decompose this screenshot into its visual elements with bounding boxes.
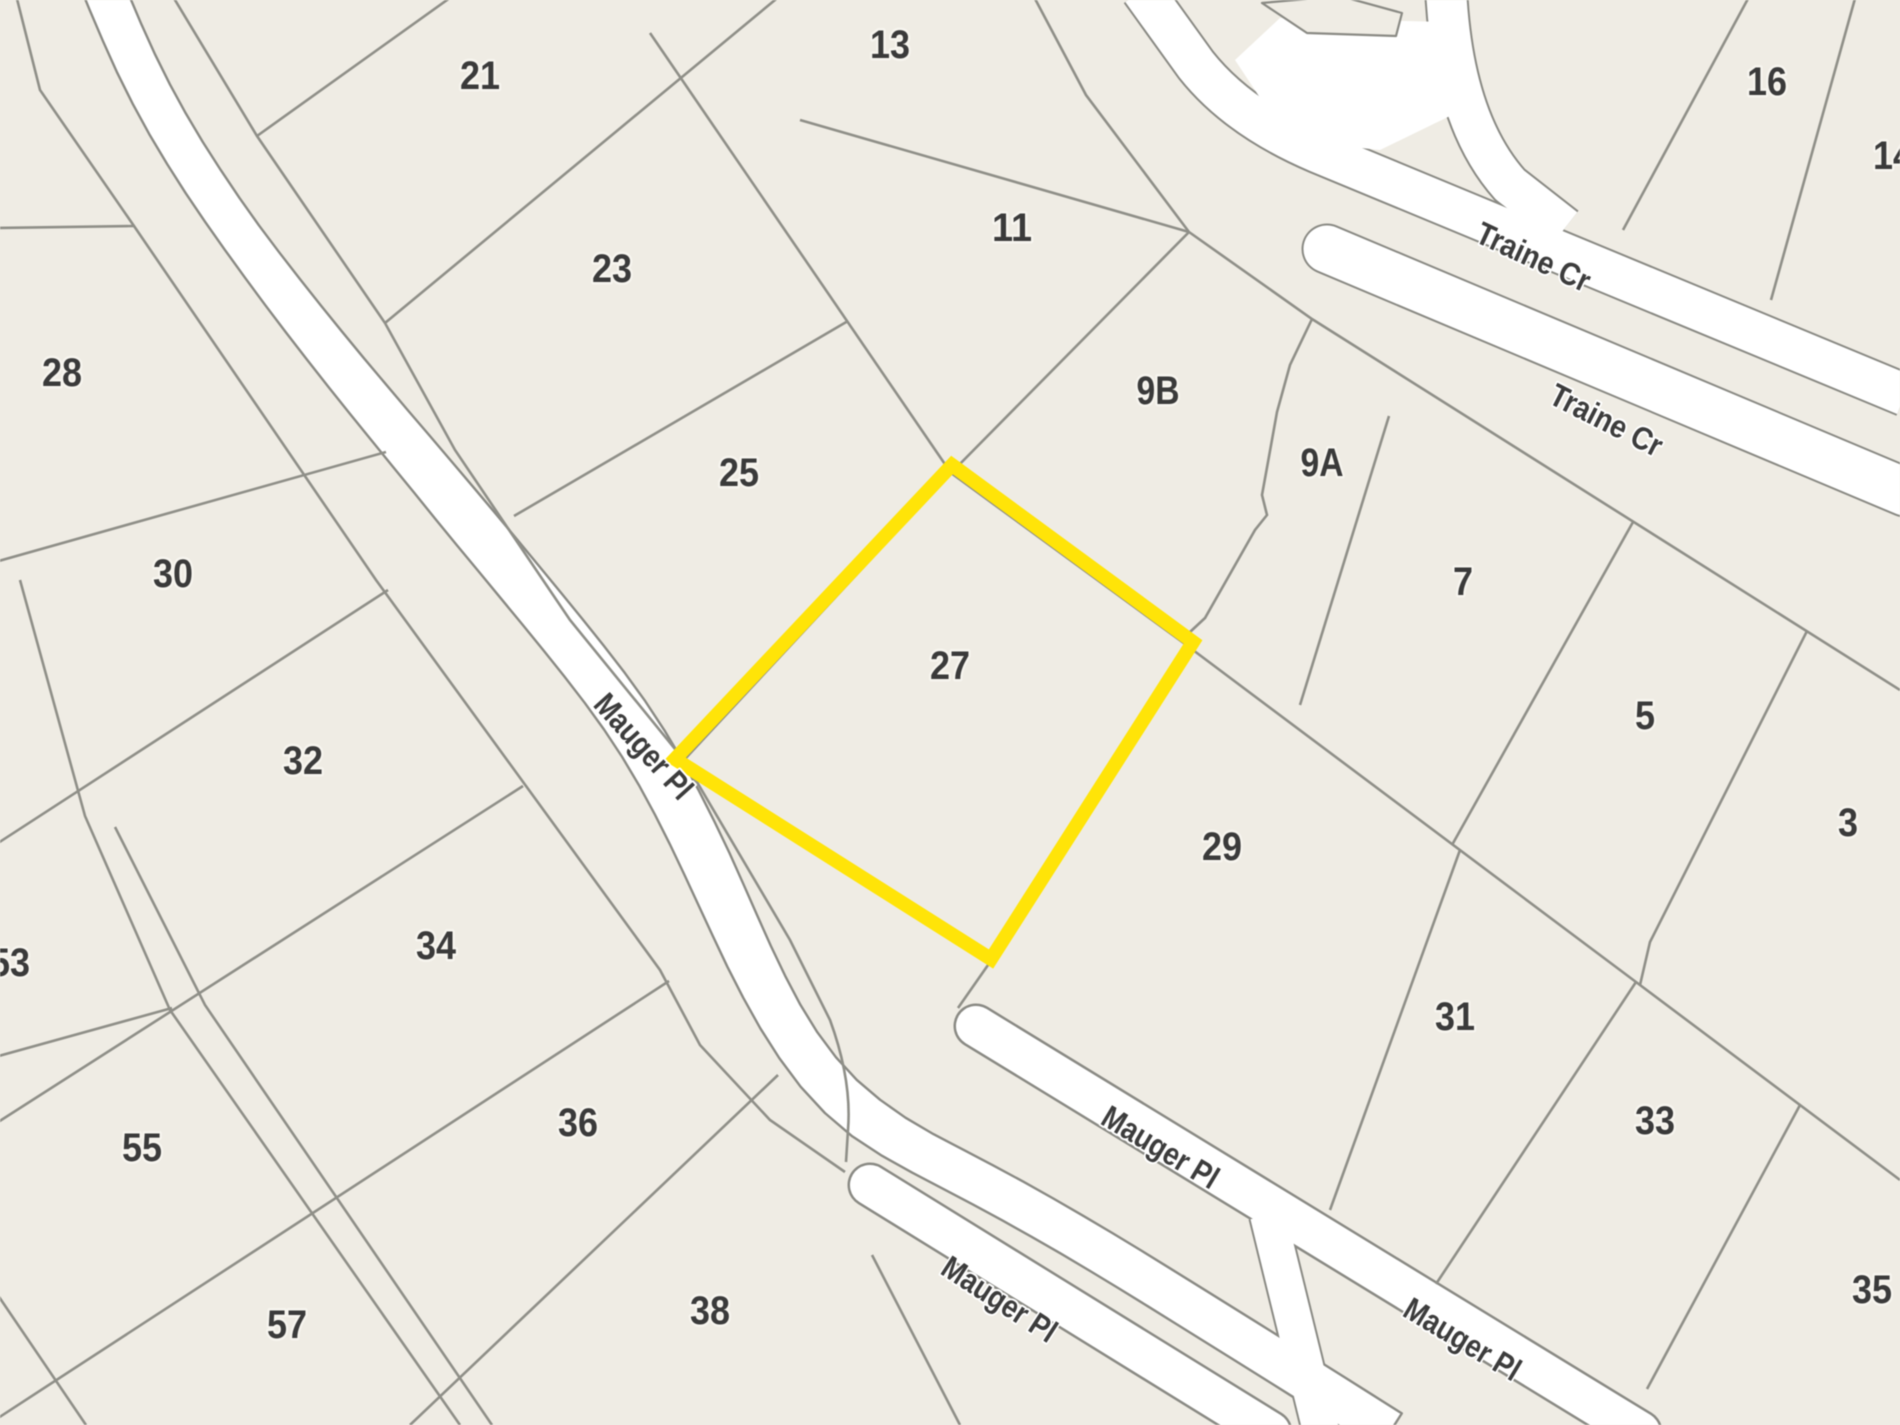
svg-text:31: 31: [1435, 995, 1475, 1039]
svg-text:32: 32: [283, 739, 323, 783]
svg-text:34: 34: [416, 924, 457, 968]
svg-text:21: 21: [460, 54, 500, 98]
svg-text:9B: 9B: [1137, 369, 1180, 413]
svg-text:7: 7: [1453, 560, 1473, 604]
svg-text:53: 53: [0, 941, 30, 985]
svg-text:27: 27: [930, 644, 970, 688]
svg-text:28: 28: [42, 351, 82, 395]
svg-text:55: 55: [122, 1126, 162, 1170]
svg-text:23: 23: [592, 247, 632, 291]
svg-text:35: 35: [1852, 1268, 1892, 1312]
svg-text:9A: 9A: [1301, 441, 1344, 485]
svg-text:36: 36: [558, 1101, 598, 1145]
svg-text:13: 13: [870, 23, 910, 67]
svg-text:30: 30: [153, 552, 193, 596]
svg-text:33: 33: [1635, 1099, 1675, 1143]
svg-text:3: 3: [1838, 801, 1858, 845]
svg-text:38: 38: [690, 1289, 730, 1333]
svg-text:29: 29: [1202, 825, 1242, 869]
svg-text:16: 16: [1747, 60, 1787, 104]
svg-text:5: 5: [1635, 694, 1655, 738]
svg-text:57: 57: [267, 1303, 307, 1347]
svg-text:25: 25: [719, 451, 759, 495]
svg-text:11: 11: [992, 206, 1032, 250]
svg-text:14: 14: [1873, 134, 1900, 178]
